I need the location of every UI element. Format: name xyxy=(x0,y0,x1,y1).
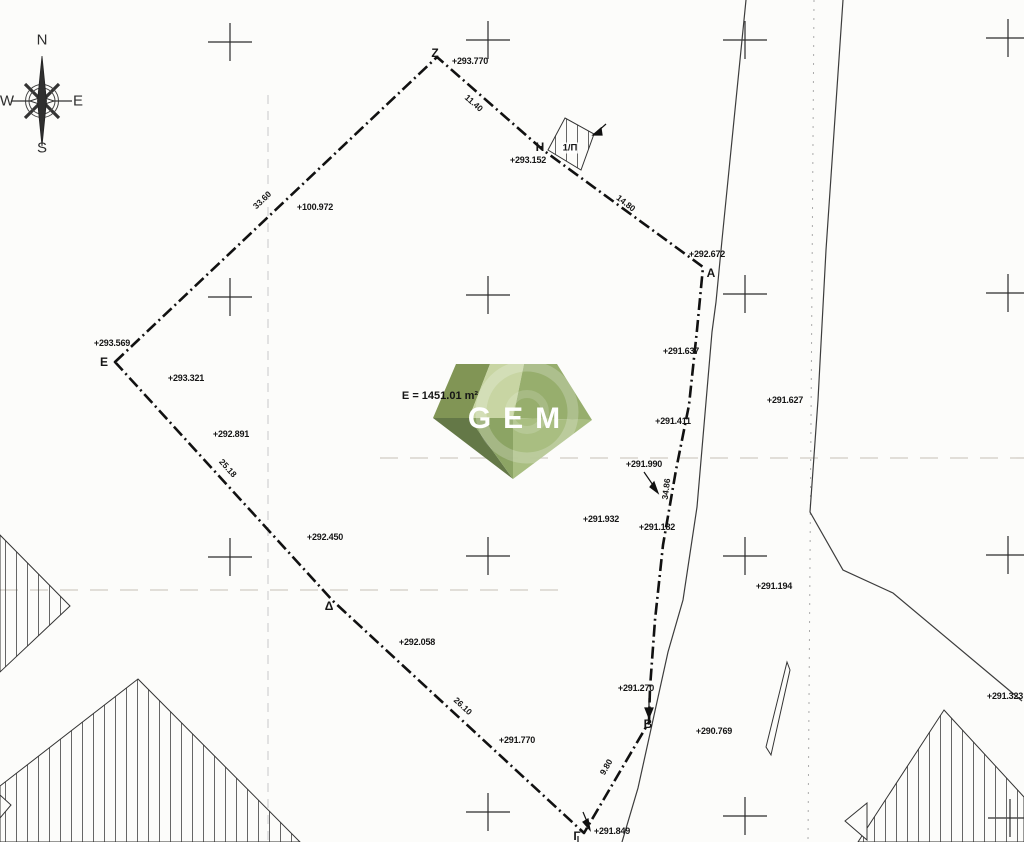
building-bottom-left xyxy=(0,679,300,842)
compass-rose xyxy=(12,56,72,146)
road-edge-lines xyxy=(622,0,1022,842)
parcel-boundary xyxy=(115,57,703,833)
building-footprints xyxy=(0,118,1024,842)
building-corner-triangle xyxy=(0,535,70,672)
grid-cross-marks xyxy=(208,19,1024,837)
leader-arrows xyxy=(578,124,658,842)
gem-logo xyxy=(433,364,592,479)
survey-map-drawing xyxy=(0,0,1024,842)
building-bottom-right xyxy=(858,710,1024,842)
survey-map-sheet: NWESZ+293.770H+293.1521/Π11.4014.80+292.… xyxy=(0,0,1024,842)
traffic-island xyxy=(766,662,790,755)
building-1p xyxy=(548,118,594,170)
